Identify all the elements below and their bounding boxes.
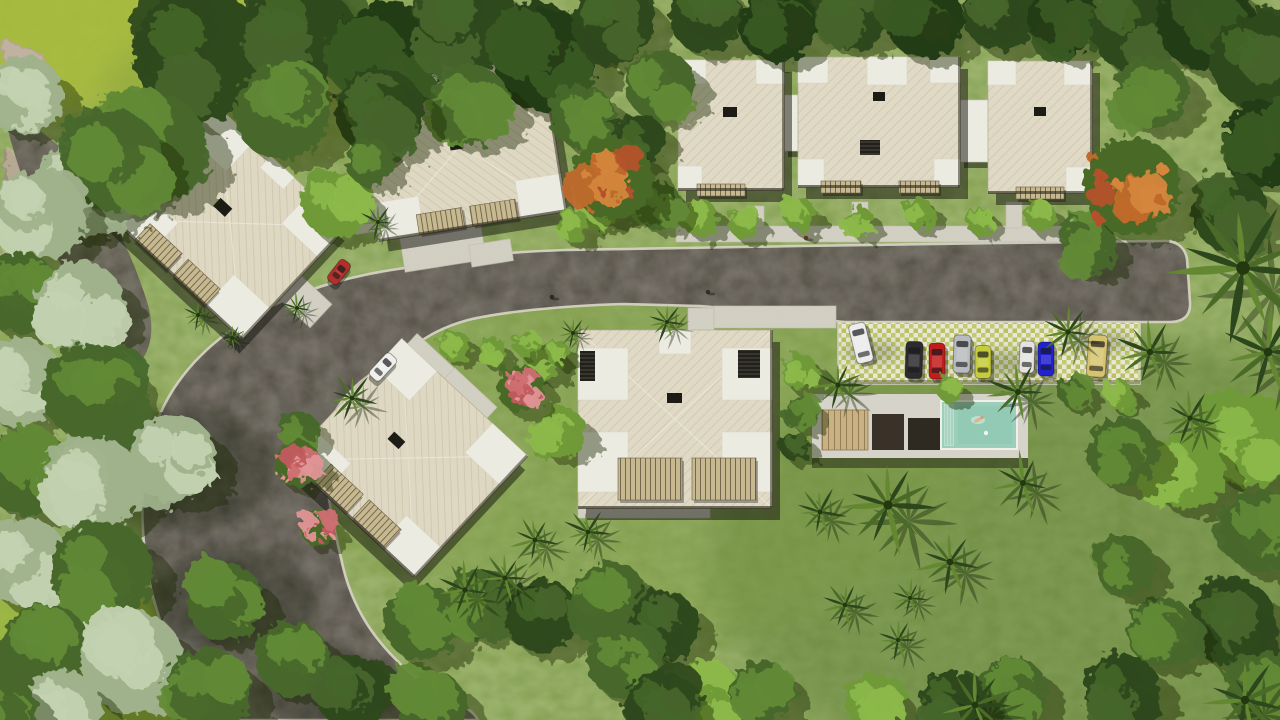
car-roof-highlight <box>908 354 919 366</box>
eave-east <box>782 60 785 190</box>
canopy-highlight <box>634 60 663 89</box>
parking-car <box>953 335 974 378</box>
canopy-highlight <box>1063 380 1077 394</box>
canopy-blob <box>527 332 539 344</box>
canopy-highlight <box>151 7 206 62</box>
flower-blob <box>324 518 337 531</box>
roof-vent <box>667 393 682 403</box>
palm-crown <box>908 596 912 600</box>
palm-crown <box>503 576 508 581</box>
rear-window <box>1089 365 1103 371</box>
flower-speckle <box>590 156 599 165</box>
canopy-blob <box>605 21 642 58</box>
flower-speckle <box>331 534 335 538</box>
canopy-highlight <box>347 80 383 116</box>
canopy-highlight <box>1215 406 1255 446</box>
palm-crown <box>947 559 954 566</box>
palm-crown <box>835 382 840 387</box>
flower-blob <box>524 388 544 408</box>
pool-deep-water <box>958 406 1012 444</box>
roof-panel <box>988 61 1016 85</box>
flower-speckle <box>1094 215 1105 226</box>
canopy-highlight <box>507 23 550 66</box>
roof-panel <box>867 57 907 85</box>
roof-panel <box>798 159 824 187</box>
canopy-highlight <box>581 572 613 604</box>
roof-louver <box>580 351 595 381</box>
canopy-highlight <box>596 637 625 666</box>
palm-crown <box>972 702 979 709</box>
canopy-highlight <box>443 335 456 348</box>
canopy-blob <box>299 420 317 438</box>
canopy-highlight <box>196 574 228 606</box>
pergola-slats <box>618 458 682 500</box>
flower-speckle <box>317 538 321 542</box>
flower-speckle <box>284 478 289 483</box>
parking-car <box>905 341 926 383</box>
rear-window <box>978 368 989 373</box>
palm-crown <box>843 603 848 608</box>
canopy-blob <box>270 658 309 697</box>
canopy-highlight <box>139 426 175 462</box>
palm-crown <box>1241 696 1249 704</box>
flower-speckle <box>303 531 307 535</box>
flower-speckle <box>296 458 301 463</box>
palm-crown <box>295 306 299 310</box>
canopy-highlight <box>1223 28 1263 68</box>
canopy-highlight <box>64 535 107 578</box>
canopy-highlight <box>94 625 137 668</box>
car-roof-highlight <box>978 359 988 367</box>
canopy-highlight <box>852 682 875 705</box>
canopy-highlight <box>562 96 588 122</box>
swimmer-head <box>980 416 983 419</box>
canopy-highlight <box>55 358 95 398</box>
canopy-blob <box>860 220 875 235</box>
flower-speckle <box>276 456 281 461</box>
building-apartment-block-center <box>798 57 968 199</box>
building-villa-center <box>578 330 780 520</box>
flower-speckle <box>1094 169 1105 180</box>
canopy-highlight <box>1103 544 1127 568</box>
canopy-highlight <box>784 435 796 447</box>
canopy-highlight <box>351 17 395 61</box>
canopy-highlight <box>849 211 861 223</box>
canopy-highlight <box>265 632 295 662</box>
canopy-highlight <box>1028 205 1041 218</box>
canopy-highlight <box>352 145 372 165</box>
palm-crown <box>533 538 538 543</box>
roof-louver <box>738 350 760 378</box>
site-plan-svg <box>0 0 1280 720</box>
pergola-slats <box>692 458 756 500</box>
windshield <box>956 341 968 347</box>
canopy-highlight <box>175 660 211 696</box>
flower-speckle <box>314 522 318 526</box>
eave-south <box>988 191 1092 194</box>
canopy-highlight <box>561 213 575 227</box>
person <box>550 295 555 300</box>
flower-blob <box>617 144 644 171</box>
flower-blob <box>280 444 303 467</box>
palm-crown <box>586 530 591 535</box>
canopy-highlight <box>790 400 804 414</box>
roof-vent <box>723 107 737 117</box>
palm-crown <box>1236 261 1250 275</box>
palm-crown <box>1015 389 1021 395</box>
palm-crown <box>571 331 575 335</box>
flower-speckle <box>581 171 590 180</box>
canopy-highlight <box>1125 66 1155 96</box>
flower-blob <box>301 454 324 477</box>
canopy-highlight <box>739 670 765 696</box>
canopy-highlight <box>1234 112 1269 147</box>
car-roof-highlight <box>932 356 942 367</box>
flower-speckle <box>1113 179 1124 190</box>
flower-blob <box>1087 179 1115 207</box>
canopy-highlight <box>47 273 83 309</box>
car-roof-highlight <box>1041 355 1051 364</box>
palm-crown <box>665 320 669 324</box>
flower-speckle <box>1088 153 1099 164</box>
palm-crown <box>196 313 200 317</box>
car-roof-highlight <box>956 348 967 361</box>
canopy-highlight <box>634 681 663 710</box>
flower-speckle <box>515 396 520 401</box>
parking-car <box>975 346 994 383</box>
canopy-highlight <box>1070 228 1093 251</box>
eave-south <box>678 188 784 191</box>
eave-east <box>770 330 773 508</box>
canopy-highlight <box>311 181 338 208</box>
palm-crown <box>230 336 234 340</box>
palm-crown <box>818 510 823 515</box>
canopy-highlight <box>247 78 287 118</box>
canopy-highlight <box>970 212 981 223</box>
flower-speckle <box>507 379 512 384</box>
palm-crown <box>883 500 892 509</box>
parking-car <box>1038 342 1057 380</box>
shade-lounge <box>872 414 904 450</box>
flower-speckle <box>291 466 296 471</box>
canopy-highlight <box>549 343 559 353</box>
flower-speckle <box>1154 194 1165 205</box>
eave-south <box>578 506 772 509</box>
flower-speckle <box>513 378 518 383</box>
canopy-highlight <box>9 183 45 219</box>
aerial-site-render <box>0 0 1280 720</box>
canopy-highlight <box>75 124 117 166</box>
canopy-highlight <box>10 618 50 658</box>
canopy-highlight <box>908 203 921 216</box>
canopy-blob <box>1096 451 1131 486</box>
rear-window <box>1022 362 1032 367</box>
rear-window <box>1041 365 1052 370</box>
canopy-highlight <box>1109 384 1121 396</box>
car-roof-highlight <box>1022 354 1031 361</box>
palm-crown <box>896 638 900 642</box>
palm-crown <box>1187 415 1192 420</box>
canopy-highlight <box>517 336 528 347</box>
canopy-highlight <box>1136 607 1165 636</box>
windshield <box>932 349 943 355</box>
palm-crown <box>350 396 355 401</box>
canopy-highlight <box>929 680 955 706</box>
flower-blob <box>1128 173 1169 214</box>
windshield <box>1022 347 1032 353</box>
canopy-highlight <box>1201 184 1233 216</box>
flower-speckle <box>625 187 634 196</box>
palm-crown <box>1065 329 1070 334</box>
flower-speckle <box>519 370 524 375</box>
palm-crown <box>1264 348 1273 357</box>
canopy-highlight <box>786 359 801 374</box>
palm-crown <box>1147 349 1153 355</box>
roof-vent <box>873 92 885 101</box>
flower-speckle <box>601 190 610 199</box>
rear-window <box>932 368 943 373</box>
flower-speckle <box>300 449 305 454</box>
canopy-highlight <box>440 76 473 109</box>
flower-speckle <box>510 369 515 374</box>
canopy-highlight <box>1232 503 1265 536</box>
flower-speckle <box>278 473 283 478</box>
canopy-highlight <box>406 681 435 710</box>
flower-speckle <box>316 513 320 517</box>
palm-crown <box>1020 480 1026 486</box>
rear-window <box>908 367 920 372</box>
canopy-blob <box>171 430 210 469</box>
flower-speckle <box>284 460 289 465</box>
windshield <box>908 347 920 353</box>
canopy-highlight <box>285 417 302 434</box>
walk-pad <box>1006 202 1022 228</box>
building-apartment-block-east <box>988 61 1100 205</box>
canopy-highlight <box>60 451 100 491</box>
canopy-highlight <box>482 342 493 353</box>
canopy-blob <box>653 83 693 123</box>
canopy-highlight <box>1093 664 1125 696</box>
walk-pad <box>714 306 836 328</box>
rear-window <box>956 362 968 367</box>
palm-crown <box>376 220 380 224</box>
canopy-highlight <box>733 213 746 226</box>
flower-speckle <box>536 393 541 398</box>
flower-speckle <box>621 172 630 181</box>
flower-speckle <box>323 533 327 537</box>
canopy-highlight <box>1096 427 1125 456</box>
flower-speckle <box>1157 164 1168 175</box>
canopy-highlight <box>393 594 425 626</box>
canopy-highlight <box>788 203 802 217</box>
flower-speckle <box>308 529 312 533</box>
roof-vent <box>1034 107 1046 116</box>
canopy-highlight <box>940 381 951 392</box>
eave-east <box>958 57 961 187</box>
roof-louver <box>860 140 880 155</box>
shade-lounge <box>908 418 940 450</box>
person <box>706 290 711 295</box>
canopy-highlight <box>1199 590 1235 626</box>
palm-crown <box>462 587 467 592</box>
flower-speckle <box>611 191 620 200</box>
eave-south <box>798 185 960 188</box>
windshield <box>978 352 989 358</box>
pool-float <box>984 431 988 435</box>
canopy-highlight <box>325 666 355 696</box>
windshield <box>1041 348 1052 354</box>
flower-speckle <box>519 387 524 392</box>
